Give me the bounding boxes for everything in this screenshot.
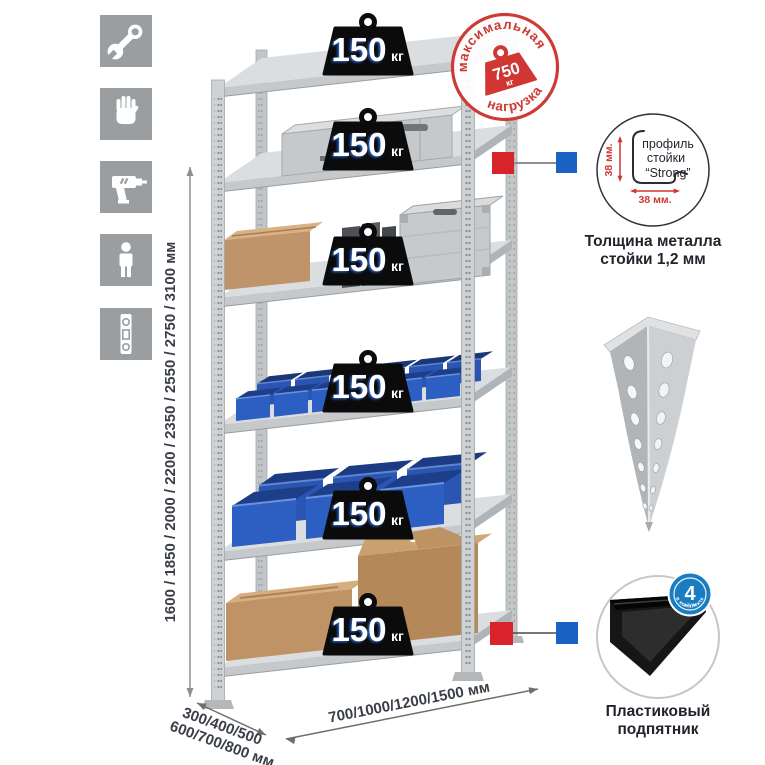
load-value: 150 [331,611,386,648]
load-unit: кг [391,143,404,159]
blue-marker-top [556,152,577,173]
profile-label-2: стойки [647,151,685,165]
metal-case [400,196,503,285]
blue-marker-bottom [556,622,578,644]
depth-dimension: 300/400/500 600/700/800 мм [168,700,283,765]
icon-tile-wrench [100,15,152,67]
shelf-load-weight-3: 150 кг [324,226,412,285]
plastic-foot-callout: 4 штуки в комплекте Пластиковый подпятни… [597,573,719,739]
width-dimension: 700/1000/1200/1500 мм [285,679,538,745]
profile-connector [492,152,577,174]
level-icon [121,314,132,354]
load-unit: кг [391,258,404,274]
shelf-load-weight-1: 150 кг [324,16,412,75]
feature-icon-column [100,15,152,360]
load-unit: кг [391,48,404,64]
infographic-svg: 1600 / 1850 / 2000 / 2200 / 2350 / 2550 … [0,0,765,765]
profile-dim-horizontal: 38 мм. [638,194,671,206]
foot-caption-2: подпятник [617,721,698,738]
load-unit: кг [391,628,404,644]
profile-caption-2: стойки 1,2 мм [600,251,705,268]
red-marker-bottom [490,622,513,645]
load-unit: кг [391,385,404,401]
load-value: 150 [331,31,386,68]
icon-tile-drill [100,161,152,213]
height-dimension-label: 1600 / 1850 / 2000 / 2200 / 2350 / 2550 … [162,242,179,623]
foot-caption-1: Пластиковый [606,703,711,720]
profile-callout: 38 мм. 38 мм. профиль стойки “Strong” То… [585,114,722,268]
profile-label-3: “Strong” [645,166,690,180]
max-load-stamp: максимальная нагрузка 750 кг [439,1,570,132]
load-value: 150 [331,368,386,405]
load-unit: кг [391,512,404,528]
corner-post-illustration [604,317,700,532]
product-infographic: 1600 / 1850 / 2000 / 2200 / 2350 / 2550 … [0,0,765,765]
profile-caption-1: Толщина металла [585,233,722,250]
icon-tile-person [100,234,152,286]
shelving-rack: 150 кг 150 кг 150 кг 150 кг 150 кг [202,16,524,710]
profile-dim-vertical: 38 мм. [603,143,615,176]
load-value: 150 [331,495,386,532]
shelf-load-weight-4: 150 кг [324,353,412,412]
profile-label-1: профиль [642,137,694,151]
foot-connector [490,622,578,645]
red-marker-top [492,152,514,174]
icon-tile-gloves [100,88,152,140]
height-dimension: 1600 / 1850 / 2000 / 2200 / 2350 / 2550 … [162,167,194,697]
cardboard-box-small [224,222,323,290]
load-value: 150 [331,241,386,278]
load-value: 150 [331,126,386,163]
quantity-badge: 4 штуки в комплекте [669,573,712,616]
icon-tile-level [100,308,152,360]
